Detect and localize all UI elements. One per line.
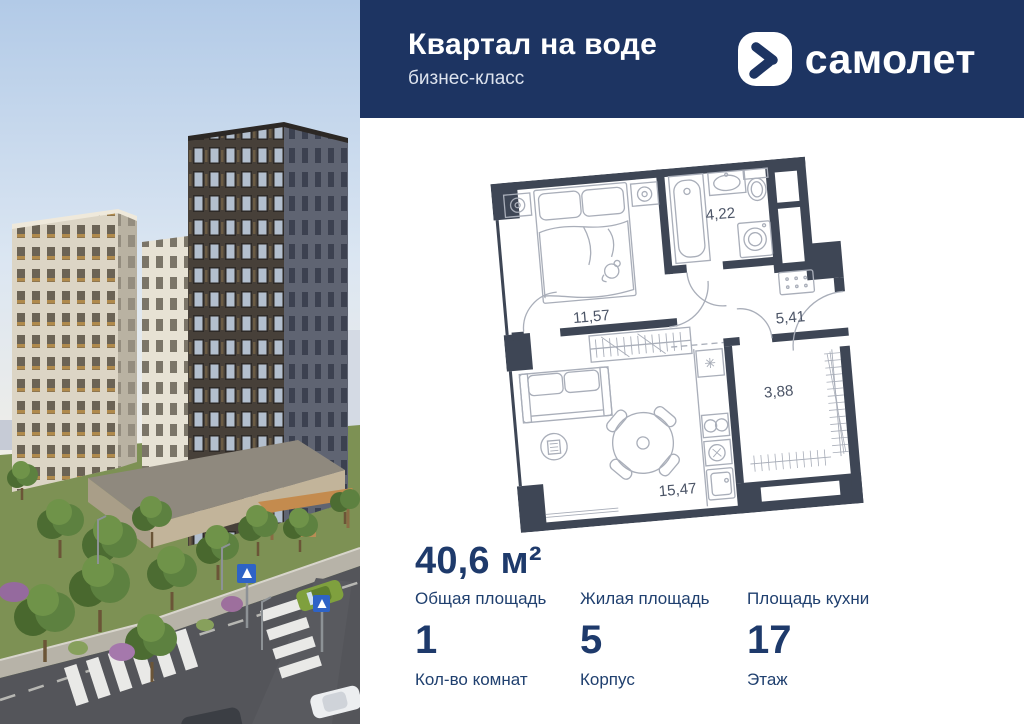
- rooms-count-label: Кол-во комнат: [415, 670, 528, 690]
- total-area-value: 40,6 м²: [415, 540, 542, 583]
- samolet-logo-mark: [738, 32, 792, 86]
- brand-name: самолет: [805, 36, 976, 83]
- project-class: бизнес-класс: [408, 68, 657, 90]
- header: Квартал на воде бизнес-класс самолет: [360, 0, 1024, 118]
- samolet-logo: самолет: [738, 32, 976, 86]
- floor-plan: 11,57 4,22 5,41 15,47 3,88: [490, 153, 875, 533]
- building-label: Корпус: [580, 670, 635, 690]
- arrow-icon: [738, 32, 792, 86]
- project-title: Квартал на воде: [408, 28, 657, 61]
- room-area-hallway: 5,41: [775, 308, 806, 328]
- walls: [490, 154, 863, 533]
- complex-photo: [0, 0, 360, 724]
- living-area-label: Жилая площадь: [580, 589, 709, 609]
- building-left: [12, 209, 137, 492]
- rooms-count-value: 1: [415, 618, 437, 663]
- room-area-wardrobe: 3,88: [763, 382, 794, 402]
- building-value: 5: [580, 618, 602, 663]
- kitchen-area-label: Площадь кухни: [747, 589, 869, 609]
- floor-label: Этаж: [747, 670, 788, 690]
- total-area-label: Общая площадь: [415, 589, 546, 609]
- room-area-bathroom: 4,22: [705, 205, 736, 225]
- room-area-bedroom: 11,57: [572, 307, 610, 327]
- listing-card: Квартал на воде бизнес-класс самолет: [0, 0, 1024, 724]
- floor-value: 17: [747, 618, 792, 663]
- room-area-living: 15,47: [658, 480, 697, 500]
